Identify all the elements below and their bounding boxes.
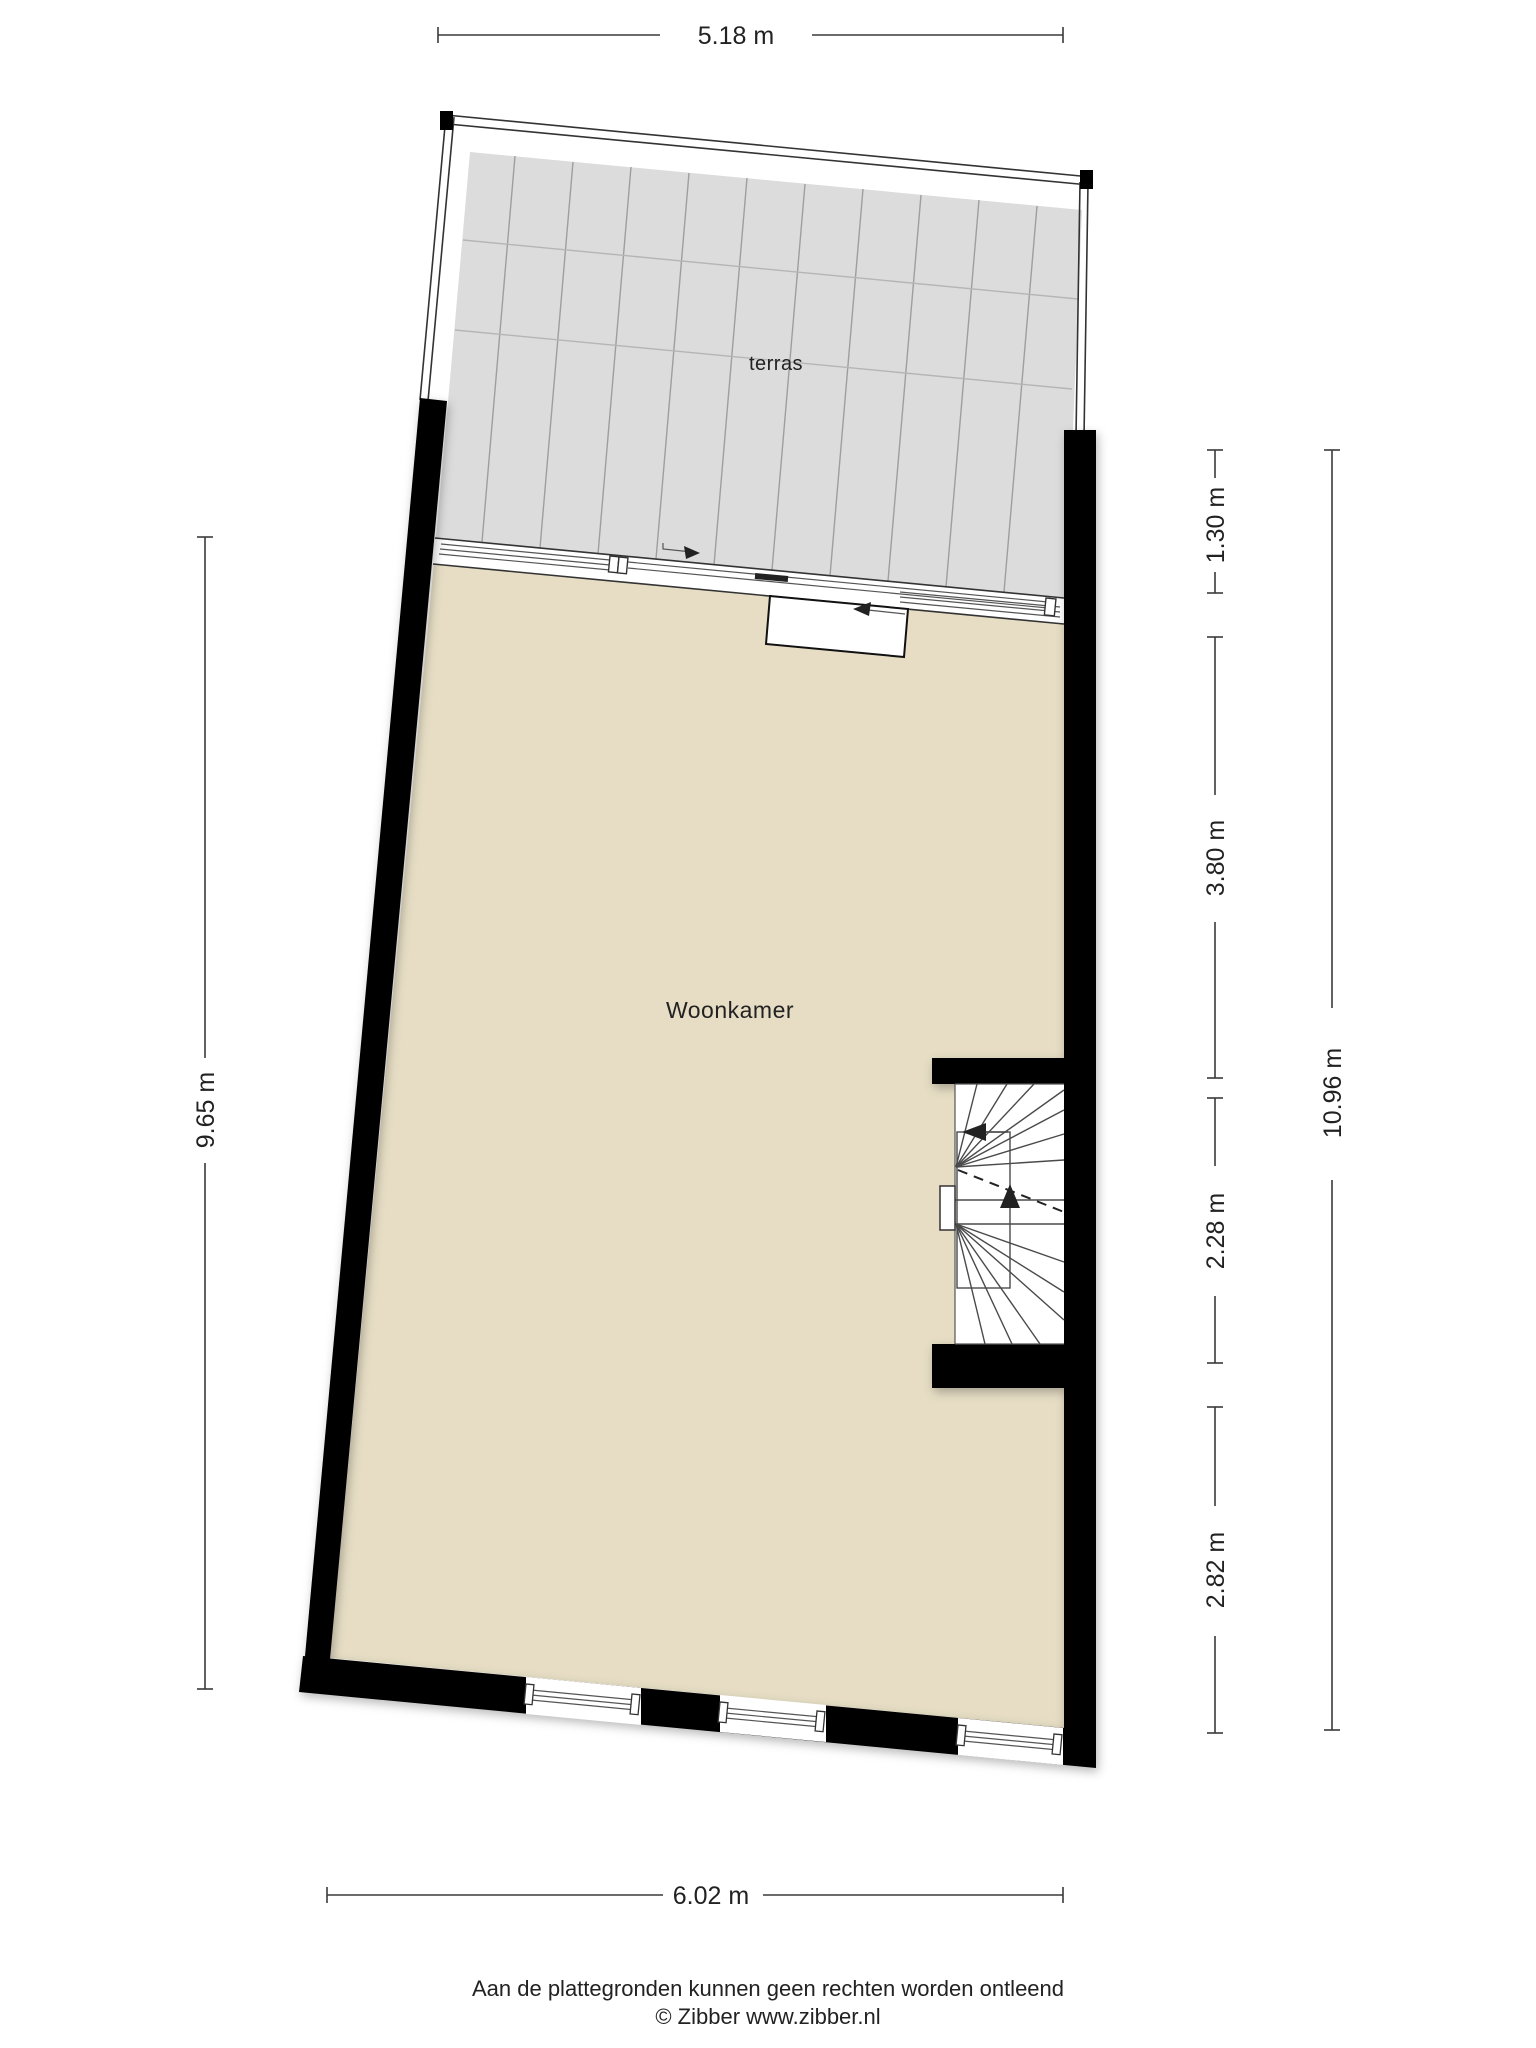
floorplan-page: terras Woonkamer xyxy=(0,0,1536,2048)
stairs xyxy=(940,1084,1064,1344)
dim-right-2-label: 3.80 m xyxy=(1202,820,1230,896)
dim-right-total: 10.96 m xyxy=(1319,450,1347,1730)
dim-right-segment-4: 2.82 m xyxy=(1202,1407,1230,1733)
terrace-deck: terras xyxy=(420,111,1093,598)
footer-disclaimer: Aan de plattegronden kunnen geen rechten… xyxy=(472,1976,1064,2001)
dim-top-label: 5.18 m xyxy=(698,22,774,50)
living-room-floor xyxy=(330,562,1064,1728)
dim-right-3-label: 2.28 m xyxy=(1202,1193,1230,1269)
dim-right-segment-3: 2.28 m xyxy=(1202,1098,1230,1363)
wall-east xyxy=(1064,430,1096,1768)
dim-right-4-label: 2.82 m xyxy=(1202,1532,1230,1608)
stairs-newel xyxy=(940,1186,955,1230)
dim-right-1-label: 1.30 m xyxy=(1202,487,1230,563)
footer: Aan de plattegronden kunnen geen rechten… xyxy=(472,1976,1064,2029)
dim-right-segment-2: 3.80 m xyxy=(1202,637,1230,1078)
dim-top: 5.18 m xyxy=(438,22,1063,50)
wall-stair-top xyxy=(932,1058,1064,1084)
dim-right-segment-1: 1.30 m xyxy=(1202,450,1230,593)
footer-copyright: © Zibber www.zibber.nl xyxy=(655,2004,880,2029)
dim-bottom-label: 6.02 m xyxy=(673,1882,749,1910)
dim-left: 9.65 m xyxy=(192,537,220,1689)
living-room-label: Woonkamer xyxy=(666,997,794,1023)
dim-right-total-label: 10.96 m xyxy=(1319,1048,1347,1138)
floorplan-svg: terras Woonkamer xyxy=(0,0,1536,2048)
wall-stair-bottom xyxy=(932,1344,1064,1388)
terrace-label: terras xyxy=(749,353,803,375)
dim-bottom: 6.02 m xyxy=(327,1882,1063,1910)
dim-left-label: 9.65 m xyxy=(192,1072,220,1148)
living-room: Woonkamer xyxy=(330,562,1064,1728)
